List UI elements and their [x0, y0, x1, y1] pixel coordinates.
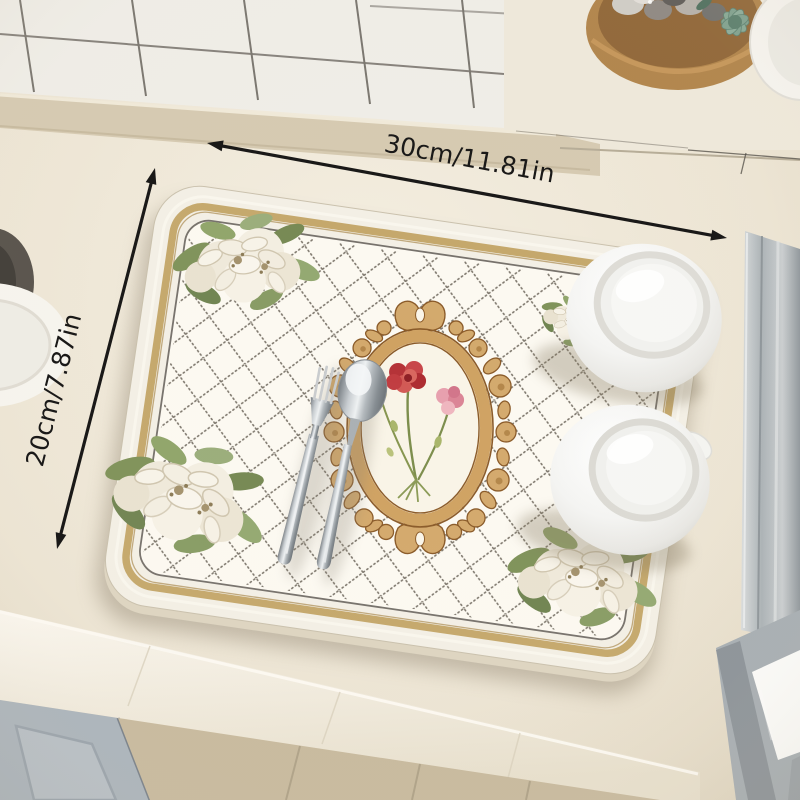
product-photo: 30cm/11.81in 20cm/7.87in [0, 0, 800, 800]
vignette [0, 0, 800, 800]
photo-scene: 30cm/11.81in 20cm/7.87in [0, 0, 800, 800]
